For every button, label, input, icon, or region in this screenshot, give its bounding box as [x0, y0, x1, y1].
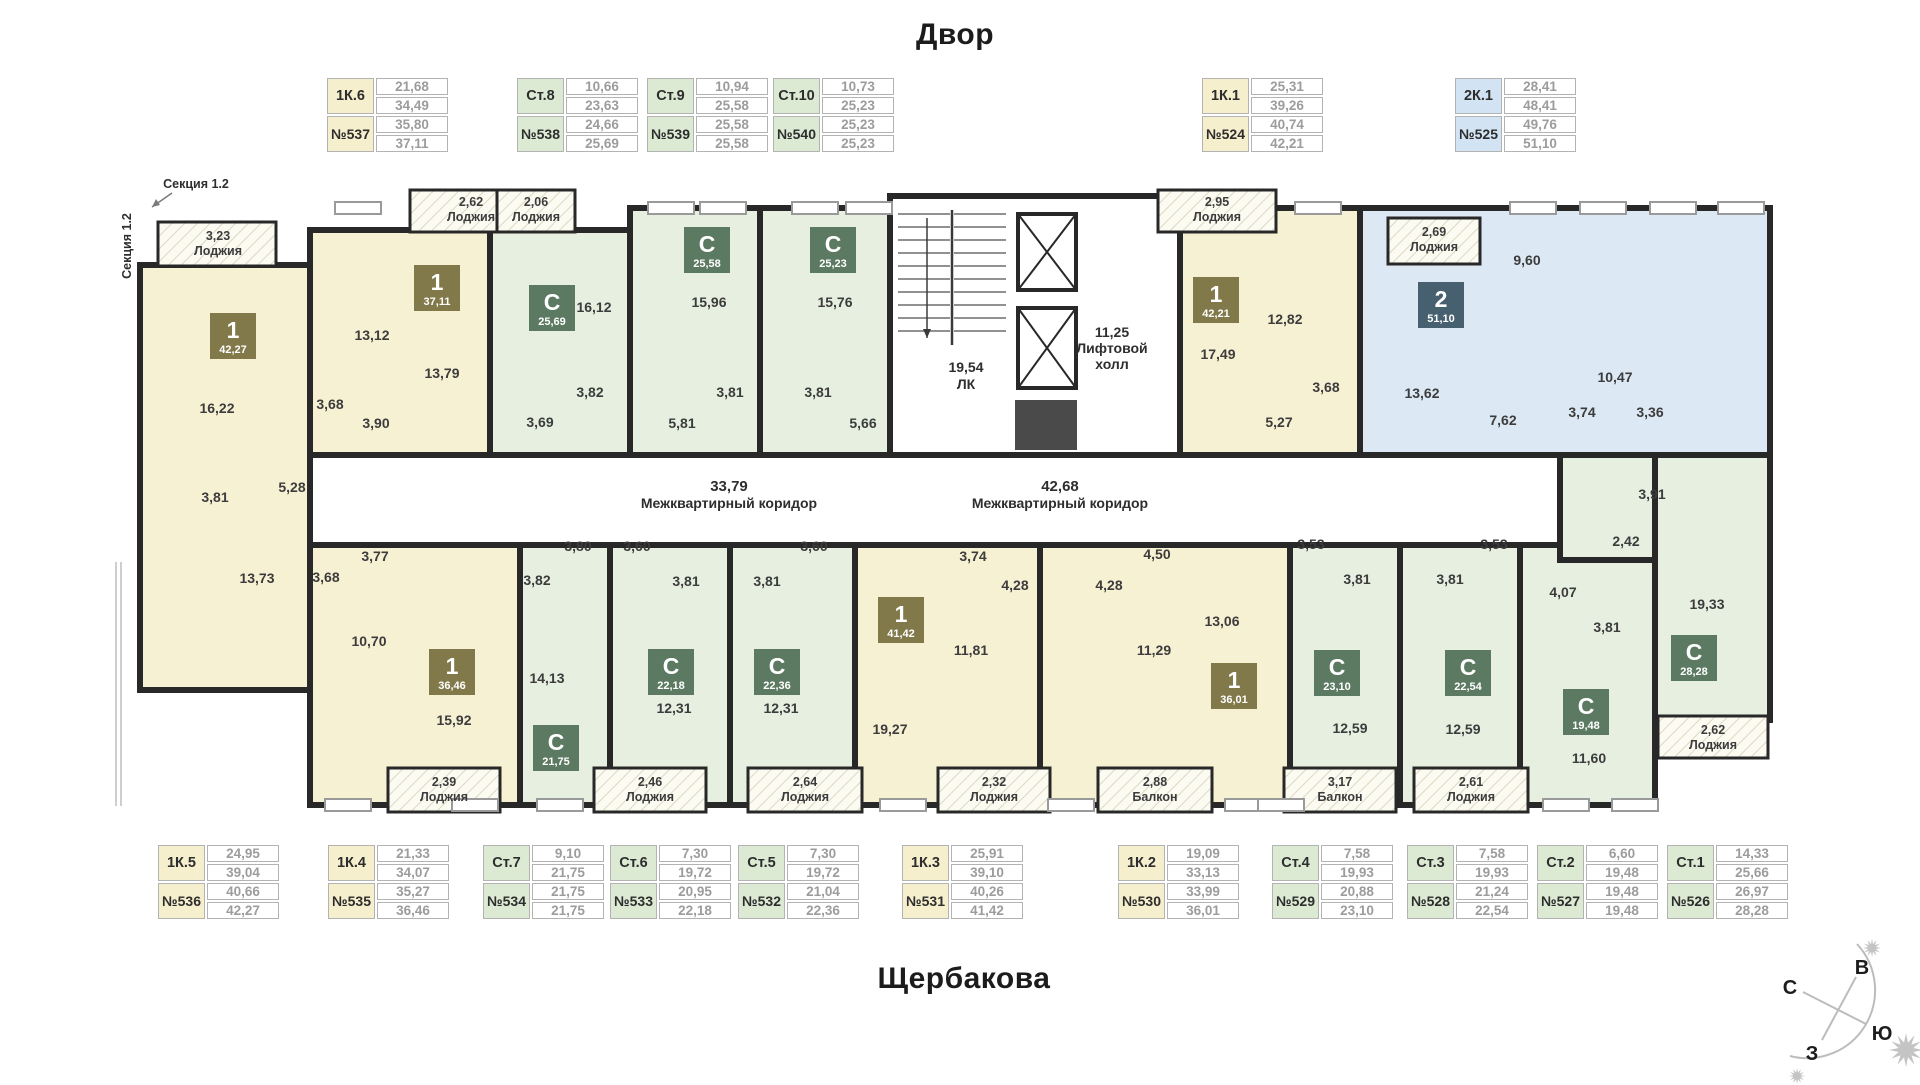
- unit-area-value: 39,26: [1251, 97, 1323, 114]
- unit-type-label: 1К.3: [902, 845, 949, 881]
- floor-plan: 16,223,815,2813,7313,1213,793,683,9016,1…: [0, 0, 1920, 1085]
- unit-area-value: 14,33: [1716, 845, 1788, 862]
- unit-number-label: №534: [483, 883, 530, 919]
- unit-area-value: 25,58: [696, 135, 768, 152]
- lift-name-line1: Лифтовой: [1076, 340, 1147, 356]
- unit-type-label: Ст.2: [1537, 845, 1584, 881]
- unit-area-value: 25,91: [951, 845, 1023, 862]
- unit-area-value: 41,42: [951, 902, 1023, 919]
- unit-badge-536[interactable]: 142,27: [210, 313, 256, 359]
- unit-number-label: №524: [1202, 116, 1249, 152]
- unit-area-value: 19,48: [1586, 902, 1658, 919]
- loggia-name-label: Лоджия: [1410, 240, 1458, 254]
- unit-shape-538[interactable]: [490, 230, 630, 455]
- unit-area-value: 7,30: [787, 845, 859, 862]
- unit-area-value: 25,58: [696, 97, 768, 114]
- unit-card[interactable]: 1К.5 №536 24,95 39,04 40,66 42,27: [158, 845, 279, 919]
- svg-text:С: С: [825, 231, 842, 257]
- room-area-label: 14,13: [529, 670, 564, 686]
- unit-area-value: 19,48: [1586, 883, 1658, 900]
- unit-type-label: Ст.6: [610, 845, 657, 881]
- unit-number-label: №528: [1407, 883, 1454, 919]
- room-area-label: 7,62: [1489, 412, 1516, 428]
- loggia-name-label: Лоджия: [512, 210, 560, 224]
- unit-number-label: №525: [1455, 116, 1502, 152]
- unit-type-label: 1К.5: [158, 845, 205, 881]
- unit-type-label: Ст.10: [773, 78, 820, 114]
- unit-area-value: 19,72: [659, 864, 731, 881]
- section-side-label: Секция 1.2: [120, 213, 134, 279]
- window: [1650, 202, 1696, 214]
- unit-area-value: 21,04: [787, 883, 859, 900]
- svg-text:22,18: 22,18: [657, 680, 685, 692]
- unit-badge-529[interactable]: С23,10: [1314, 650, 1360, 696]
- svg-text:1: 1: [227, 317, 240, 343]
- room-area-label: 16,22: [199, 400, 234, 416]
- unit-number-label: №530: [1118, 883, 1165, 919]
- unit-type-label: 1К.6: [327, 78, 374, 114]
- loggia-area-label: 2,69: [1422, 225, 1446, 239]
- unit-badge-537[interactable]: 137,11: [414, 265, 460, 311]
- lift-name-line2: холл: [1095, 356, 1128, 372]
- room-area-label: 2,42: [1612, 533, 1639, 549]
- unit-area-value: 21,24: [1456, 883, 1528, 900]
- svg-text:2: 2: [1435, 286, 1448, 312]
- room-area-label: 11,81: [954, 642, 988, 658]
- unit-area-value: 25,31: [1251, 78, 1323, 95]
- window: [648, 202, 694, 214]
- corridor-1-name: Межквартирный коридор: [641, 495, 817, 511]
- room-area-label: 3,77: [361, 548, 388, 564]
- room-area-label: 3,36: [1636, 404, 1663, 420]
- unit-area-value: 10,73: [822, 78, 894, 95]
- svg-text:36,46: 36,46: [438, 680, 466, 692]
- loggia-area-label: 2,06: [524, 195, 548, 209]
- unit-card[interactable]: Ст.7 №534 9,10 21,75 21,75 21,75: [483, 845, 604, 919]
- unit-area-value: 48,41: [1504, 97, 1576, 114]
- unit-area-value: 22,36: [787, 902, 859, 919]
- loggia-area-label: 2,39: [432, 775, 456, 789]
- unit-area-value: 40,66: [207, 883, 279, 900]
- unit-area-value: 49,76: [1504, 116, 1576, 133]
- unit-area-value: 39,10: [951, 864, 1023, 881]
- room-area-label: 10,70: [351, 633, 386, 649]
- unit-badge-540[interactable]: С25,23: [810, 227, 856, 273]
- unit-area-value: 21,75: [532, 902, 604, 919]
- room-area-label: 5,27: [1265, 414, 1292, 430]
- svg-text:С: С: [1578, 693, 1595, 719]
- compass-west-label: З: [1806, 1043, 1819, 1065]
- room-area-label: 3,74: [959, 548, 986, 564]
- unit-area-value: 33,99: [1167, 883, 1239, 900]
- unit-area-value: 21,75: [532, 883, 604, 900]
- unit-number-label: №538: [517, 116, 564, 152]
- loggia-name-label: Лоджия: [194, 244, 242, 258]
- room-area-label: 13,12: [354, 327, 389, 343]
- floorplan-page: Двор Щербакова: [0, 0, 1920, 1085]
- unit-area-value: 51,10: [1504, 135, 1576, 152]
- unit-number-label: №532: [738, 883, 785, 919]
- room-area-label: 17,49: [1200, 346, 1235, 362]
- room-area-label: 16,12: [576, 299, 611, 315]
- window: [700, 202, 746, 214]
- loggia-area-label: 2,32: [982, 775, 1006, 789]
- svg-text:С: С: [1460, 654, 1477, 680]
- loggia-area-label: 2,46: [638, 775, 662, 789]
- loggia-name-label: Балкон: [1132, 790, 1177, 804]
- unit-area-value: 40,26: [951, 883, 1023, 900]
- unit-type-label: Ст.3: [1407, 845, 1454, 881]
- room-area-label: 19,27: [872, 721, 907, 737]
- unit-area-value: 28,28: [1716, 902, 1788, 919]
- room-area-label: 3,81: [201, 489, 228, 505]
- unit-badge-538[interactable]: С25,69: [529, 285, 575, 331]
- room-area-label: 3,81: [716, 384, 743, 400]
- unit-area-value: 20,88: [1321, 883, 1393, 900]
- unit-area-value: 6,60: [1586, 845, 1658, 862]
- room-area-label: 19,33: [1689, 596, 1724, 612]
- loggia-area-label: 2,62: [459, 195, 483, 209]
- unit-area-value: 33,13: [1167, 864, 1239, 881]
- unit-card[interactable]: Ст.3 №528 7,58 19,93 21,24 22,54: [1407, 845, 1528, 919]
- room-area-label: 3,81: [1593, 619, 1620, 635]
- unit-area-value: 21,33: [377, 845, 449, 862]
- unit-card[interactable]: Ст.2 №527 6,60 19,48 19,48 19,48: [1537, 845, 1658, 919]
- room-area-label: 10,47: [1597, 369, 1632, 385]
- unit-type-label: Ст.1: [1667, 845, 1714, 881]
- unit-badge-528[interactable]: С22,54: [1445, 650, 1491, 696]
- loggia-name-label: Лоджия: [781, 790, 829, 804]
- compass-north-label: С: [1783, 977, 1797, 999]
- stairs-name: ЛК: [957, 376, 976, 392]
- room-area-label: 3,81: [804, 384, 831, 400]
- compass-ew-line: [1822, 977, 1856, 1040]
- unit-area-value: 28,41: [1504, 78, 1576, 95]
- svg-text:1: 1: [895, 601, 908, 627]
- stairs-area: 19,54: [948, 359, 983, 375]
- room-area-label: 3,91: [1638, 486, 1665, 502]
- unit-area-value: 7,30: [659, 845, 731, 862]
- section-callout-label: Секция 1.2: [163, 177, 229, 191]
- unit-number-label: №526: [1667, 883, 1714, 919]
- unit-number-label: №529: [1272, 883, 1319, 919]
- svg-text:1: 1: [1210, 281, 1223, 307]
- room-area-label: 12,31: [656, 700, 691, 716]
- unit-area-value: 42,21: [1251, 135, 1323, 152]
- unit-area-value: 25,23: [822, 116, 894, 133]
- window: [1543, 799, 1589, 811]
- window: [792, 202, 838, 214]
- loggia-area-label: 3,23: [206, 229, 230, 243]
- room-area-label: 12,31: [763, 700, 798, 716]
- unit-badge-530[interactable]: 136,01: [1211, 663, 1257, 709]
- unit-badge-539[interactable]: С25,58: [684, 227, 730, 273]
- unit-area-value: 36,46: [377, 902, 449, 919]
- room-area-label: 12,59: [1445, 721, 1480, 737]
- unit-card[interactable]: Ст.10 №540 10,73 25,23 25,23 25,23: [773, 78, 894, 152]
- loggia-name-label: Лоджия: [420, 790, 468, 804]
- loggia-area-label: 2,64: [793, 775, 817, 789]
- svg-text:С: С: [663, 653, 680, 679]
- room-area-label: 3,60: [800, 538, 827, 554]
- unit-type-label: 1К.2: [1118, 845, 1165, 881]
- unit-card[interactable]: 2К.1 №525 28,41 48,41 49,76 51,10: [1455, 78, 1576, 152]
- unit-badge-526[interactable]: С28,28: [1671, 635, 1717, 681]
- unit-area-value: 7,58: [1321, 845, 1393, 862]
- loggia-name-label: Лоджия: [1193, 210, 1241, 224]
- room-area-label: 5,28: [278, 479, 305, 495]
- loggia-area-label: 2,88: [1143, 775, 1167, 789]
- unit-area-value: 22,54: [1456, 902, 1528, 919]
- room-area-label: 5,81: [668, 415, 695, 431]
- corridor-1-area: 33,79: [710, 478, 748, 495]
- unit-badge-534[interactable]: С21,75: [533, 725, 579, 771]
- unit-type-label: Ст.4: [1272, 845, 1319, 881]
- loggia-name-label: Лоджия: [447, 210, 495, 224]
- unit-card[interactable]: Ст.4 №529 7,58 19,93 20,88 23,10: [1272, 845, 1393, 919]
- unit-area-value: 20,95: [659, 883, 731, 900]
- unit-area-value: 19,72: [787, 864, 859, 881]
- room-area-label: 3,82: [523, 572, 550, 588]
- compass-ns-line: [1803, 992, 1866, 1024]
- room-area-label: 15,92: [436, 712, 471, 728]
- svg-text:С: С: [769, 653, 786, 679]
- unit-area-value: 35,80: [376, 116, 448, 133]
- unit-number-label: №527: [1537, 883, 1584, 919]
- unit-type-label: Ст.9: [647, 78, 694, 114]
- unit-area-value: 25,66: [1716, 864, 1788, 881]
- unit-area-value: 24,66: [566, 116, 638, 133]
- room-area-label: 12,59: [1332, 720, 1367, 736]
- compass: С В Ю З: [1783, 939, 1920, 1084]
- unit-area-value: 19,09: [1167, 845, 1239, 862]
- room-area-label: 13,79: [424, 365, 459, 381]
- unit-card[interactable]: 1К.1 №524 25,31 39,26 40,74 42,21: [1202, 78, 1323, 152]
- unit-area-value: 7,58: [1456, 845, 1528, 862]
- room-area-label: 4,07: [1549, 584, 1576, 600]
- room-area-label: 3,68: [316, 396, 343, 412]
- unit-card[interactable]: Ст.8 №538 10,66 23,63 24,66 25,69: [517, 78, 638, 152]
- unit-card[interactable]: Ст.6 №533 7,30 19,72 20,95 22,18: [610, 845, 731, 919]
- svg-text:36,01: 36,01: [1220, 694, 1248, 706]
- loggia-area-label: 3,17: [1328, 775, 1352, 789]
- svg-text:С: С: [544, 289, 561, 315]
- room-area-label: 13,06: [1204, 613, 1239, 629]
- corridor: [310, 455, 1560, 545]
- svg-text:42,21: 42,21: [1202, 308, 1230, 320]
- svg-text:51,10: 51,10: [1427, 313, 1455, 325]
- svg-text:25,58: 25,58: [693, 258, 721, 270]
- svg-text:28,28: 28,28: [1680, 666, 1708, 678]
- unit-shape-535[interactable]: [310, 545, 520, 805]
- svg-text:37,11: 37,11: [424, 296, 451, 308]
- unit-area-value: 23,10: [1321, 902, 1393, 919]
- window: [1295, 202, 1341, 214]
- unit-area-value: 22,18: [659, 902, 731, 919]
- unit-badge-531[interactable]: 141,42: [878, 597, 924, 643]
- unit-badge-525[interactable]: 251,10: [1418, 282, 1464, 328]
- unit-area-value: 9,10: [532, 845, 604, 862]
- room-area-label: 11,60: [1572, 750, 1606, 766]
- unit-area-value: 25,58: [696, 116, 768, 133]
- room-area-label: 3,81: [1343, 571, 1370, 587]
- svg-text:25,69: 25,69: [538, 316, 566, 328]
- window: [1612, 799, 1658, 811]
- room-area-label: 3,69: [526, 414, 553, 430]
- svg-text:22,54: 22,54: [1454, 681, 1482, 693]
- unit-area-value: 23,63: [566, 97, 638, 114]
- unit-area-value: 19,48: [1586, 864, 1658, 881]
- unit-badge-527[interactable]: С19,48: [1563, 689, 1609, 735]
- loggia-name-label: Лоджия: [1689, 738, 1737, 752]
- room-area-label: 3,74: [1568, 404, 1595, 420]
- unit-area-value: 10,66: [566, 78, 638, 95]
- room-area-label: 5,66: [849, 415, 876, 431]
- unit-area-value: 25,23: [822, 97, 894, 114]
- window: [880, 799, 926, 811]
- svg-text:1: 1: [446, 653, 459, 679]
- room-area-label: 3,81: [753, 573, 780, 589]
- unit-number-label: №536: [158, 883, 205, 919]
- unit-number-label: №531: [902, 883, 949, 919]
- svg-text:1: 1: [1228, 667, 1241, 693]
- unit-area-value: 19,93: [1456, 864, 1528, 881]
- compass-south-label: Ю: [1872, 1023, 1893, 1045]
- window: [846, 202, 892, 214]
- unit-area-value: 19,93: [1321, 864, 1393, 881]
- room-area-label: 15,76: [817, 294, 852, 310]
- svg-text:41,42: 41,42: [887, 628, 915, 640]
- unit-number-label: №540: [773, 116, 820, 152]
- unit-type-label: Ст.5: [738, 845, 785, 881]
- loggia-area-label: 2,61: [1459, 775, 1483, 789]
- svg-text:19,48: 19,48: [1572, 720, 1600, 732]
- unit-area-value: 21,68: [376, 78, 448, 95]
- unit-area-value: 24,95: [207, 845, 279, 862]
- room-area-label: 4,50: [1143, 546, 1170, 562]
- elevators: [1015, 214, 1077, 450]
- room-area-label: 11,29: [1137, 642, 1171, 658]
- lift-area: 11,25: [1095, 324, 1129, 340]
- window: [1048, 799, 1094, 811]
- svg-text:22,36: 22,36: [763, 680, 791, 692]
- room-area-label: 3,60: [623, 538, 650, 554]
- unit-number-label: №539: [647, 116, 694, 152]
- unit-area-value: 42,27: [207, 902, 279, 919]
- room-area-label: 3,68: [312, 569, 339, 585]
- unit-area-value: 39,04: [207, 864, 279, 881]
- room-area-label: 15,96: [691, 294, 726, 310]
- corridor-2-name: Межквартирный коридор: [972, 495, 1148, 511]
- unit-shape-537[interactable]: [310, 230, 490, 455]
- room-area-label: 3,90: [362, 415, 389, 431]
- room-area-label: 3,80: [564, 538, 591, 554]
- unit-badge-524[interactable]: 142,21: [1193, 277, 1239, 323]
- unit-card[interactable]: 1К.3 №531 25,91 39,10 40,26 41,42: [902, 845, 1023, 919]
- room-area-label: 4,28: [1095, 577, 1122, 593]
- svg-text:23,10: 23,10: [1323, 681, 1351, 693]
- compass-east-label: В: [1855, 957, 1869, 979]
- unit-number-label: №533: [610, 883, 657, 919]
- window: [1718, 202, 1764, 214]
- svg-text:С: С: [1329, 654, 1346, 680]
- unit-card[interactable]: Ст.1 №526 14,33 25,66 26,97 28,28: [1667, 845, 1788, 919]
- unit-number-label: №537: [327, 116, 374, 152]
- unit-type-label: 1К.4: [328, 845, 375, 881]
- unit-shapes: [140, 196, 1770, 805]
- svg-text:С: С: [1686, 639, 1703, 665]
- unit-type-label: 1К.1: [1202, 78, 1249, 114]
- loggia-name-label: Лоджия: [970, 790, 1018, 804]
- window: [335, 202, 381, 214]
- room-area-label: 12,82: [1267, 311, 1302, 327]
- unit-area-value: 21,75: [532, 864, 604, 881]
- svg-text:С: С: [548, 729, 565, 755]
- room-area-label: 3,81: [1436, 571, 1463, 587]
- unit-area-value: 36,01: [1167, 902, 1239, 919]
- window: [1258, 799, 1304, 811]
- unit-number-label: №535: [328, 883, 375, 919]
- svg-text:25,23: 25,23: [819, 258, 847, 270]
- room-area-label: 4,28: [1001, 577, 1028, 593]
- unit-badge-533[interactable]: С22,18: [648, 649, 694, 695]
- unit-area-value: 34,07: [377, 864, 449, 881]
- room-area-label: 3,53: [1480, 536, 1507, 552]
- loggia-name-label: Балкон: [1317, 790, 1362, 804]
- loggia-area-label: 2,95: [1205, 195, 1229, 209]
- svg-text:42,27: 42,27: [219, 344, 247, 356]
- unit-area-value: 10,94: [696, 78, 768, 95]
- unit-card[interactable]: Ст.9 №539 10,94 25,58 25,58 25,58: [647, 78, 768, 152]
- unit-card[interactable]: 1К.6 №537 21,68 34,49 35,80 37,11: [327, 78, 448, 152]
- unit-area-value: 37,11: [376, 135, 448, 152]
- room-area-label: 3,53: [1297, 536, 1324, 552]
- svg-text:21,75: 21,75: [542, 756, 570, 768]
- room-area-label: 9,60: [1513, 252, 1540, 268]
- unit-type-label: 2К.1: [1455, 78, 1502, 114]
- unit-type-label: Ст.7: [483, 845, 530, 881]
- unit-badge-535[interactable]: 136,46: [429, 649, 475, 695]
- unit-area-value: 26,97: [1716, 883, 1788, 900]
- loggia-name-label: Лоджия: [626, 790, 674, 804]
- room-area-label: 3,82: [576, 384, 603, 400]
- room-area-label: 3,68: [1312, 379, 1339, 395]
- unit-area-value: 40,74: [1251, 116, 1323, 133]
- unit-badge-532[interactable]: С22,36: [754, 649, 800, 695]
- unit-card[interactable]: 1К.4 №535 21,33 34,07 35,27 36,46: [328, 845, 449, 919]
- unit-card[interactable]: 1К.2 №530 19,09 33,13 33,99 36,01: [1118, 845, 1239, 919]
- svg-text:С: С: [699, 231, 716, 257]
- loggia-name-label: Лоджия: [1447, 790, 1495, 804]
- unit-area-value: 34,49: [376, 97, 448, 114]
- unit-type-label: Ст.8: [517, 78, 564, 114]
- unit-card[interactable]: Ст.5 №532 7,30 19,72 21,04 22,36: [738, 845, 859, 919]
- window: [325, 799, 371, 811]
- room-area-label: 13,62: [1404, 385, 1439, 401]
- unit-shape-527[interactable]: [1520, 545, 1655, 805]
- svg-text:1: 1: [431, 269, 444, 295]
- window: [1510, 202, 1556, 214]
- window: [1580, 202, 1626, 214]
- unit-area-value: 25,23: [822, 135, 894, 152]
- unit-area-value: 25,69: [566, 135, 638, 152]
- unit-area-value: 35,27: [377, 883, 449, 900]
- room-area-label: 3,81: [672, 573, 699, 589]
- corridor-2-area: 42,68: [1041, 478, 1079, 495]
- room-area-label: 13,73: [239, 570, 274, 586]
- window: [537, 799, 583, 811]
- loggia-area-label: 2,62: [1701, 723, 1725, 737]
